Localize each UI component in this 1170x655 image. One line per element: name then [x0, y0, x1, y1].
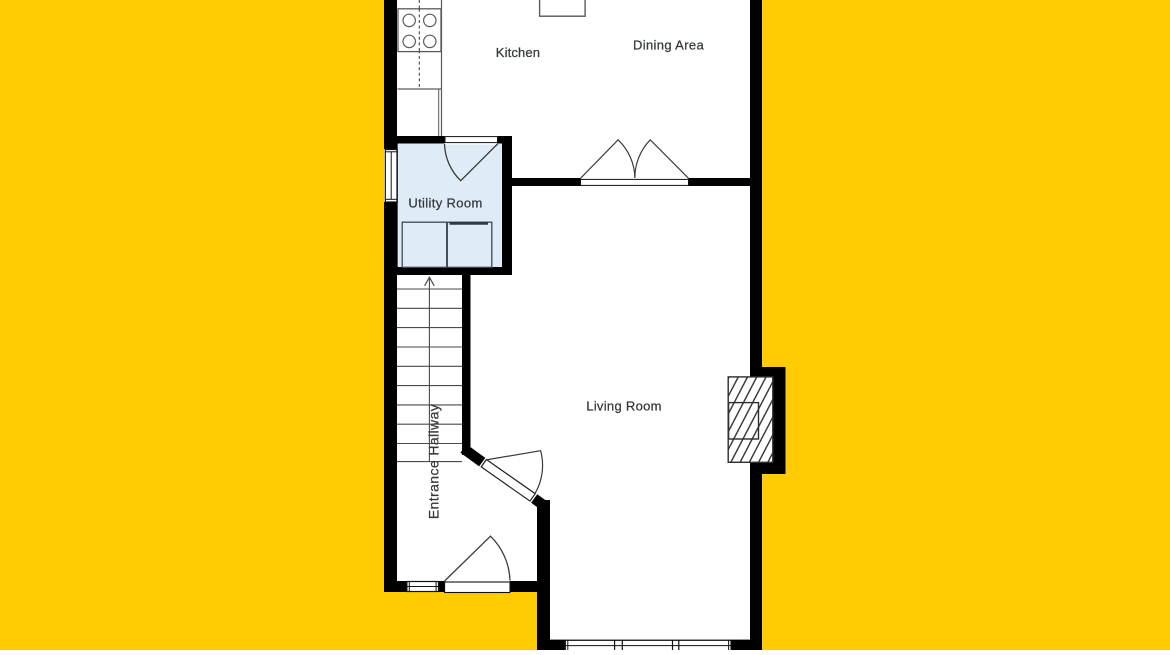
svg-text:Kitchen: Kitchen	[496, 45, 540, 60]
svg-text:Living Room: Living Room	[586, 398, 662, 413]
svg-text:Entrance Hallway: Entrance Hallway	[426, 404, 442, 519]
svg-text:Dining Area: Dining Area	[633, 38, 704, 53]
svg-text:Utility Room: Utility Room	[408, 195, 482, 210]
